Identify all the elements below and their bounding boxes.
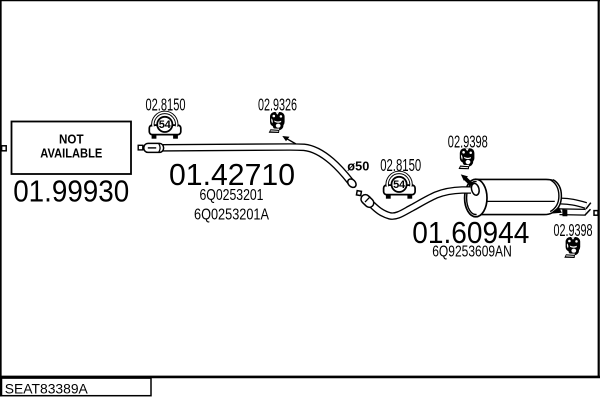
- svg-text:6Q0253201A: 6Q0253201A: [194, 206, 269, 223]
- svg-text:ø50: ø50: [347, 158, 369, 173]
- svg-text:6Q9253609AN: 6Q9253609AN: [432, 243, 512, 260]
- svg-text:02.9398: 02.9398: [554, 220, 593, 240]
- svg-text:02.9326: 02.9326: [258, 94, 297, 114]
- svg-text:NOT: NOT: [59, 131, 84, 146]
- svg-text:6Q0253201: 6Q0253201: [200, 187, 264, 204]
- svg-text:AVAILABLE: AVAILABLE: [40, 146, 102, 161]
- svg-text:SEAT83389A: SEAT83389A: [5, 380, 89, 396]
- svg-text:01.99930: 01.99930: [13, 176, 129, 209]
